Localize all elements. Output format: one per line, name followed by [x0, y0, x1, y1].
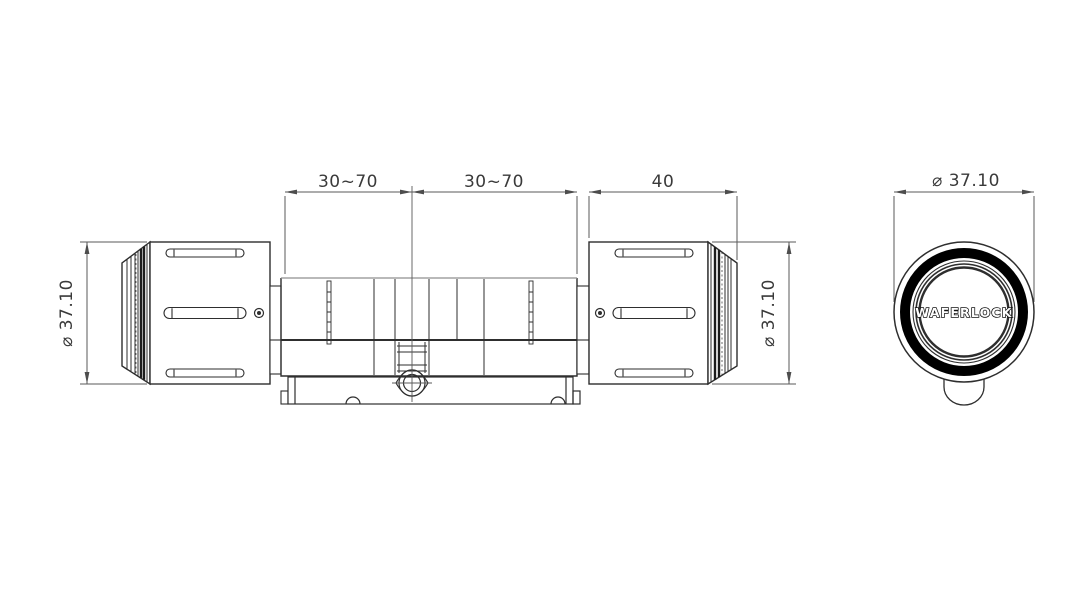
- left-knob: [122, 242, 270, 384]
- dim-label-diameter-right: ⌀ 37.10: [759, 279, 779, 347]
- right-knob: [589, 242, 737, 384]
- cylinder-body: [281, 278, 577, 376]
- profile-bar: [288, 377, 580, 404]
- drawing-page: 30~70 30~70 40 ⌀ 37.10 ⌀ 37.10 ⌀ 37.10 W…: [0, 0, 1088, 610]
- technical-drawing-canvas: 30~70 30~70 40 ⌀ 37.10 ⌀ 37.10 ⌀ 37.10 W…: [0, 0, 1088, 610]
- left-knob-body: [150, 242, 270, 384]
- dim-label-span-right: 30~70: [464, 172, 524, 192]
- cylinder-side-view: [122, 242, 737, 404]
- dim-label-diameter-left: ⌀ 37.10: [57, 279, 77, 347]
- left-neck: [270, 286, 288, 404]
- right-neck: [577, 286, 589, 374]
- right-knob-taper: [708, 242, 737, 384]
- dim-label-front-diameter: ⌀ 37.10: [932, 171, 1000, 191]
- left-clip: [327, 281, 331, 344]
- knob-front-view: [894, 190, 1034, 405]
- dim-label-knob-length: 40: [652, 172, 675, 192]
- dim-label-span-left: 30~70: [318, 172, 378, 192]
- brand-text: WAFERLOCK: [915, 305, 1013, 320]
- right-clip: [529, 281, 533, 344]
- right-knob-body: [589, 242, 708, 384]
